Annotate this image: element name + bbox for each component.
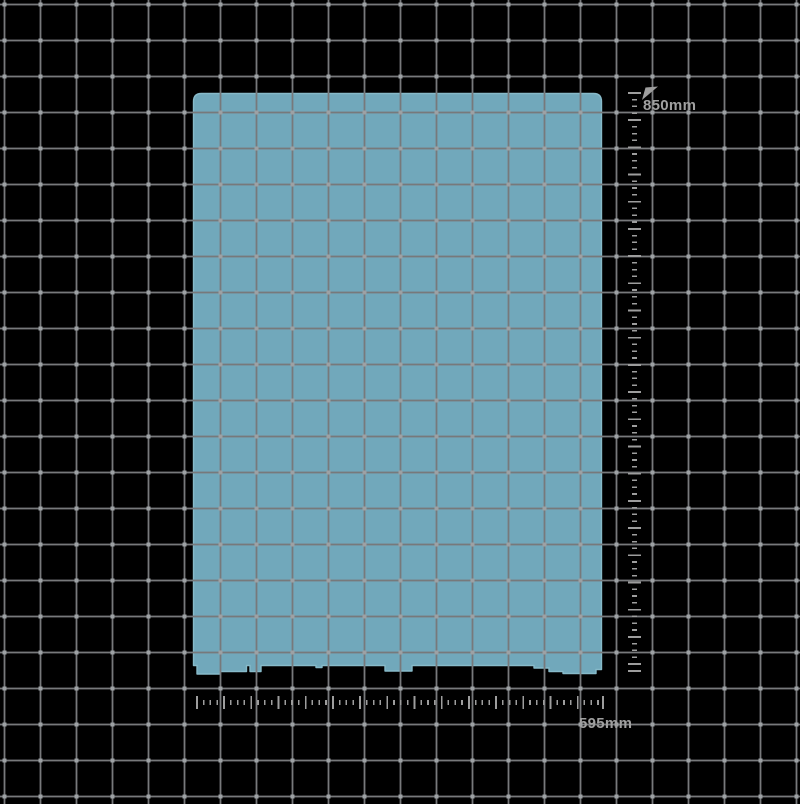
width-dimension-label: 595mm <box>579 715 632 732</box>
panel-drawing <box>0 0 800 804</box>
grid-overlay <box>0 0 800 804</box>
height-dimension-label: 850mm <box>643 97 696 114</box>
horizontal-dimension-ruler <box>196 696 604 709</box>
design-canvas: 850mm 595mm <box>0 0 800 804</box>
vertical-dimension-ruler <box>628 92 641 672</box>
